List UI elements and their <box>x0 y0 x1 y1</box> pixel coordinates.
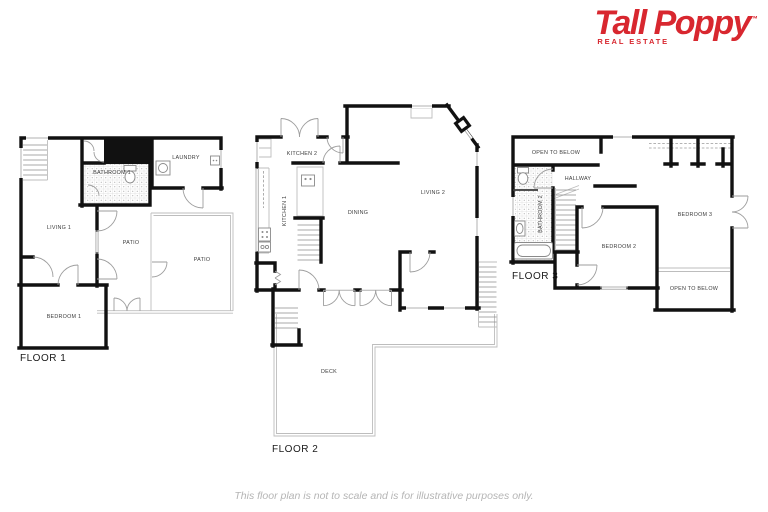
floorplan-page: Tall Poppy™ REAL ESTATE <box>0 0 768 512</box>
room-label-deck: DECK <box>321 369 337 375</box>
room-label-bathroom-2: BATHROOM 2 <box>538 195 544 233</box>
room-label-open-below-bottom: OPEN TO BELOW <box>670 286 719 292</box>
toilet-icon-2 <box>518 168 529 185</box>
room-label-bathroom-1: BATHROOM 1 <box>93 170 131 176</box>
stove-icon <box>259 228 271 241</box>
floor1-stairs-icon <box>23 145 47 175</box>
floor2-stairs-icon <box>275 225 497 328</box>
room-label-bedroom-3: BEDROOM 3 <box>678 212 713 218</box>
basin-icon <box>515 221 526 236</box>
floor2-label: FLOOR 2 <box>272 444 318 455</box>
washer-icon <box>156 161 170 175</box>
room-label-patio-large: PATIO <box>194 257 211 263</box>
bathtub-icon <box>515 243 553 260</box>
disclaimer-text: This floor plan is not to scale and is f… <box>0 490 768 502</box>
floor2-windows <box>256 106 477 308</box>
floor2-deck-outline <box>258 108 497 436</box>
room-label-living-1: LIVING 1 <box>47 225 71 231</box>
room-label-patio-small: PATIO <box>123 240 140 246</box>
floor1-plan: LIVING 1 BATHROOM 1 LAUNDRY PATIO PATIO … <box>19 138 233 364</box>
floor2-plan: KITCHEN 2 KITCHEN 1 DINING LIVING 2 DECK… <box>256 105 497 455</box>
laundry-appliance-icon <box>211 156 220 165</box>
room-label-dining: DINING <box>348 210 368 216</box>
floor1-core-block <box>104 138 152 164</box>
room-label-kitchen-1: KITCHEN 1 <box>282 196 288 226</box>
room-label-bedroom-2: BEDROOM 2 <box>602 244 637 250</box>
floor3-plan: OPEN TO BELOW HALLWAY BATHROOM 2 BEDROOM… <box>511 137 748 311</box>
sink-icon <box>259 242 271 252</box>
room-label-kitchen-2: KITCHEN 2 <box>287 151 317 157</box>
floor1-label: FLOOR 1 <box>20 353 66 364</box>
floor3-open-below-lines <box>553 186 730 272</box>
room-label-hallway: HALLWAY <box>565 176 592 182</box>
room-label-living-2: LIVING 2 <box>421 190 445 196</box>
room-label-bedroom-1: BEDROOM 1 <box>47 314 82 320</box>
floor3-wardrobe-rails <box>649 144 731 148</box>
floor2-window-gaps <box>257 106 477 308</box>
floorplan-canvas: LIVING 1 BATHROOM 1 LAUNDRY PATIO PATIO … <box>0 0 768 512</box>
cooktop-icon <box>302 175 315 186</box>
floor3-label: FLOOR 3 <box>512 271 558 282</box>
floor3-stairs-icon <box>556 190 576 250</box>
room-label-open-below-top: OPEN TO BELOW <box>532 150 581 156</box>
room-label-laundry: LAUNDRY <box>172 155 200 161</box>
